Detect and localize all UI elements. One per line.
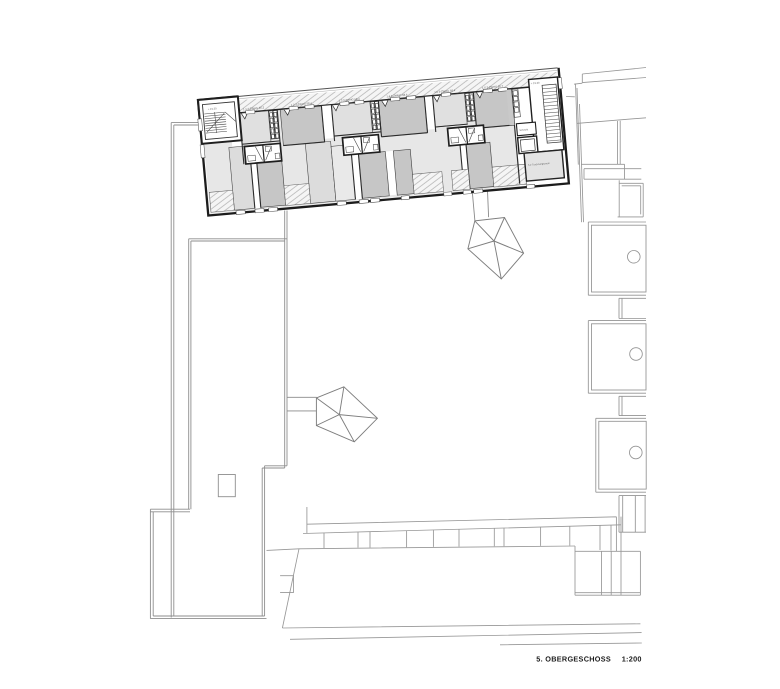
svg-text:5. OBERGESCHOSS: 5. OBERGESCHOSS [536, 654, 611, 663]
svg-text:1:200: 1:200 [622, 654, 642, 663]
